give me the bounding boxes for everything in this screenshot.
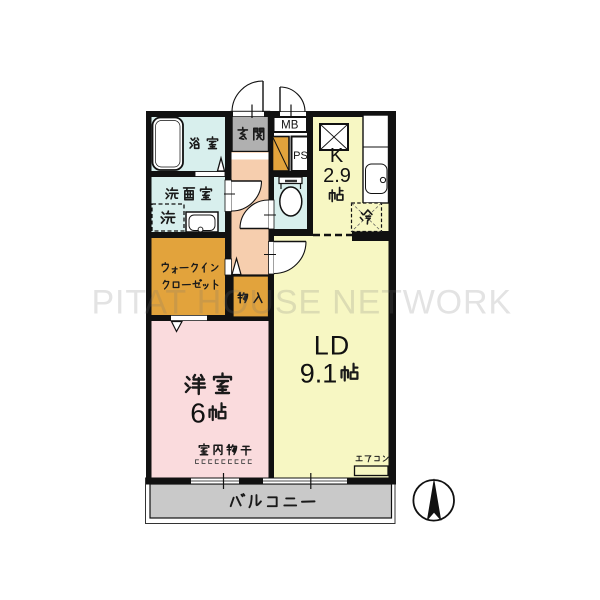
svg-text:LD: LD xyxy=(314,331,351,361)
svg-text:6: 6 xyxy=(190,398,206,429)
svg-text:9.1: 9.1 xyxy=(300,359,338,389)
svg-text:K: K xyxy=(330,145,344,167)
svg-text:2.9: 2.9 xyxy=(323,165,351,187)
svg-text:PS: PS xyxy=(293,150,308,162)
svg-text:MB: MB xyxy=(281,119,299,131)
svg-text:PITAT HOUSE NETWORK: PITAT HOUSE NETWORK xyxy=(92,284,512,322)
